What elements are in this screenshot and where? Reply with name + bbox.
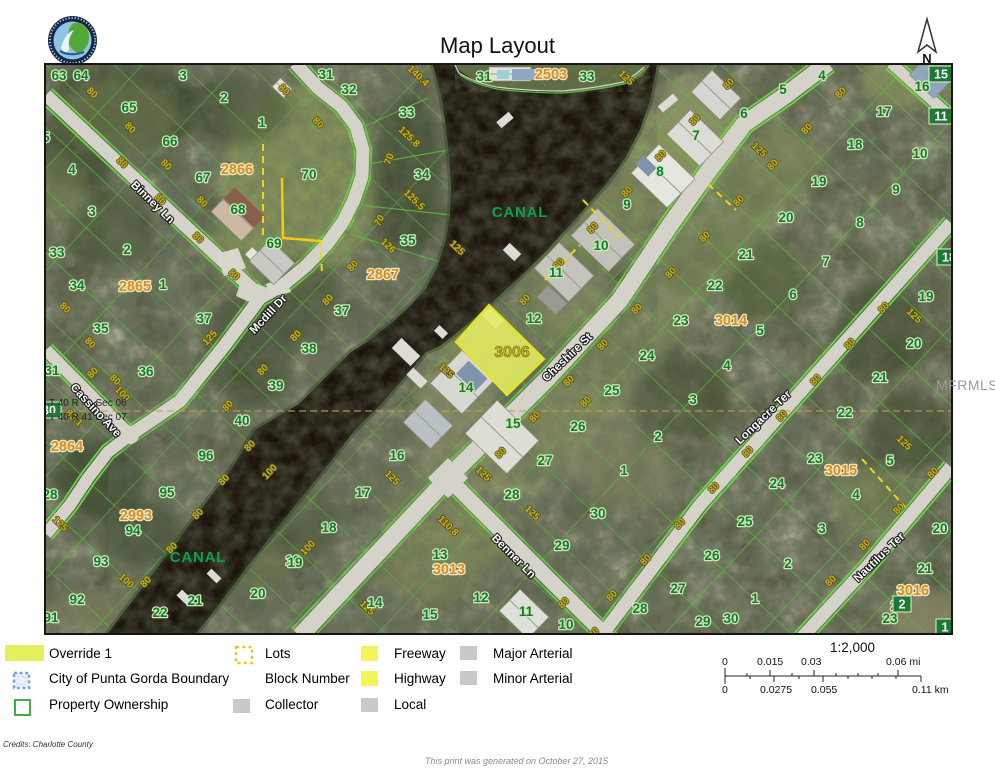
svg-text:10: 10 [558, 617, 573, 632]
svg-text:16: 16 [914, 79, 930, 94]
svg-text:21: 21 [738, 247, 754, 262]
svg-text:33: 33 [49, 245, 65, 260]
svg-text:2865: 2865 [119, 279, 151, 295]
svg-text:25: 25 [604, 383, 620, 398]
svg-text:2503: 2503 [535, 67, 567, 83]
svg-text:9: 9 [623, 197, 631, 212]
svg-text:6: 6 [740, 106, 748, 121]
svg-text:8: 8 [856, 215, 864, 230]
svg-text:2: 2 [220, 90, 228, 105]
svg-text:28: 28 [504, 487, 520, 502]
svg-text:2: 2 [123, 242, 131, 257]
svg-text:13: 13 [432, 547, 448, 562]
svg-text:2: 2 [784, 556, 792, 571]
svg-text:7: 7 [822, 254, 830, 269]
svg-text:37: 37 [196, 311, 211, 326]
svg-text:3: 3 [689, 392, 697, 407]
svg-text:26: 26 [570, 419, 586, 434]
svg-text:30: 30 [723, 611, 738, 626]
svg-text:15: 15 [505, 416, 521, 431]
svg-text:5: 5 [886, 453, 894, 468]
svg-text:21: 21 [872, 370, 888, 385]
svg-text:94: 94 [125, 523, 141, 538]
svg-text:29: 29 [695, 614, 710, 629]
svg-text:31: 31 [46, 363, 60, 378]
svg-text:1: 1 [258, 115, 266, 130]
svg-text:3: 3 [88, 204, 96, 219]
svg-text:20: 20 [250, 586, 265, 601]
svg-text:5: 5 [46, 130, 50, 145]
svg-text:67: 67 [195, 170, 210, 185]
svg-text:2: 2 [654, 429, 662, 444]
svg-text:15: 15 [422, 607, 438, 622]
svg-text:23: 23 [673, 313, 689, 328]
svg-text:0: 0 [722, 684, 728, 696]
svg-text:11: 11 [934, 110, 947, 124]
svg-text:26: 26 [704, 548, 720, 563]
svg-text:33: 33 [399, 105, 415, 120]
svg-text:37: 37 [334, 303, 349, 318]
svg-text:7: 7 [692, 128, 700, 143]
svg-text:14: 14 [458, 380, 474, 395]
svg-text:21: 21 [187, 593, 203, 608]
svg-text:1: 1 [159, 277, 167, 292]
svg-text:2864: 2864 [51, 439, 83, 455]
svg-text:17: 17 [355, 485, 370, 500]
svg-text:31: 31 [318, 67, 334, 82]
svg-text:3015: 3015 [825, 463, 857, 479]
svg-text:0.06 mi: 0.06 mi [886, 656, 920, 668]
svg-text:36: 36 [138, 364, 154, 379]
svg-text:69: 69 [266, 236, 281, 251]
svg-text:24: 24 [639, 348, 655, 363]
svg-text:91: 91 [46, 610, 59, 625]
svg-text:22: 22 [152, 605, 167, 620]
svg-text:96: 96 [198, 448, 214, 463]
svg-text:19: 19 [918, 289, 933, 304]
svg-text:35: 35 [400, 233, 416, 248]
svg-text:17: 17 [876, 104, 891, 119]
svg-text:18: 18 [321, 520, 337, 535]
svg-text:23: 23 [882, 611, 898, 626]
svg-text:3013: 3013 [433, 562, 465, 578]
svg-text:12: 12 [526, 311, 541, 326]
svg-text:5: 5 [756, 323, 764, 338]
svg-text:22: 22 [707, 278, 722, 293]
svg-text:6: 6 [789, 287, 797, 302]
svg-text:11: 11 [519, 604, 534, 619]
svg-text:19: 19 [811, 174, 826, 189]
svg-text:93: 93 [93, 554, 109, 569]
svg-text:4: 4 [852, 487, 860, 502]
svg-text:10: 10 [593, 238, 608, 253]
svg-text:2993: 2993 [120, 508, 152, 524]
svg-text:0: 0 [722, 656, 728, 668]
svg-text:20: 20 [906, 336, 921, 351]
svg-text:34: 34 [414, 167, 430, 182]
svg-text:27: 27 [670, 581, 685, 596]
svg-text:95: 95 [159, 485, 175, 500]
svg-text:31: 31 [476, 69, 492, 84]
svg-text:9: 9 [892, 182, 900, 197]
svg-text:2867: 2867 [367, 267, 399, 283]
svg-text:3006: 3006 [494, 344, 530, 361]
svg-text:10: 10 [912, 146, 927, 161]
svg-text:3014: 3014 [715, 313, 747, 329]
svg-text:0.11 km: 0.11 km [912, 684, 949, 696]
svg-text:19: 19 [287, 555, 302, 570]
svg-text:3: 3 [179, 68, 187, 83]
svg-text:23: 23 [807, 451, 823, 466]
svg-text:1: 1 [620, 463, 628, 478]
svg-text:33: 33 [579, 69, 595, 84]
svg-text:35: 35 [93, 321, 109, 336]
svg-text:21: 21 [917, 561, 933, 576]
svg-text:0.03: 0.03 [801, 656, 822, 668]
svg-text:38: 38 [301, 341, 317, 356]
svg-text:28: 28 [632, 601, 648, 616]
svg-text:0.0275: 0.0275 [760, 684, 792, 696]
svg-text:2866: 2866 [221, 162, 253, 178]
svg-text:5: 5 [779, 82, 787, 97]
svg-text:27: 27 [537, 453, 552, 468]
svg-text:68: 68 [230, 202, 246, 217]
svg-text:4: 4 [818, 68, 826, 83]
svg-text:14: 14 [367, 595, 383, 610]
svg-text:29: 29 [554, 538, 569, 553]
svg-text:11: 11 [549, 265, 564, 280]
svg-text:18: 18 [942, 251, 951, 265]
svg-text:16: 16 [389, 448, 405, 463]
svg-text:20: 20 [778, 210, 793, 225]
svg-text:24: 24 [769, 476, 785, 491]
svg-text:8: 8 [656, 164, 664, 179]
svg-text:T 40 R 41 Sec 07: T 40 R 41 Sec 07 [49, 412, 127, 423]
svg-text:4: 4 [723, 358, 731, 373]
svg-text:CANAL: CANAL [170, 549, 227, 566]
svg-text:32: 32 [341, 82, 356, 97]
svg-text:66: 66 [162, 134, 178, 149]
svg-text:20: 20 [932, 521, 947, 536]
svg-text:CANAL: CANAL [492, 204, 549, 221]
svg-text:63: 63 [51, 68, 67, 83]
svg-text:40: 40 [234, 413, 249, 428]
svg-text:1: 1 [751, 591, 759, 606]
svg-text:22: 22 [837, 405, 852, 420]
svg-text:18: 18 [847, 137, 863, 152]
svg-text:1: 1 [942, 621, 949, 634]
svg-text:92: 92 [69, 592, 84, 607]
svg-text:4: 4 [68, 162, 76, 177]
svg-text:0.015: 0.015 [757, 656, 783, 668]
svg-text:39: 39 [268, 378, 283, 393]
svg-text:12: 12 [473, 590, 488, 605]
svg-text:15: 15 [934, 68, 948, 82]
svg-text:0.055: 0.055 [811, 684, 837, 696]
svg-text:34: 34 [69, 278, 85, 293]
svg-text:65: 65 [121, 100, 137, 115]
svg-text:70: 70 [301, 167, 316, 182]
svg-text:2: 2 [899, 598, 906, 612]
svg-text:28: 28 [46, 487, 58, 502]
svg-text:64: 64 [73, 68, 89, 83]
svg-text:3: 3 [818, 521, 826, 536]
svg-text:1:2,000: 1:2,000 [830, 640, 875, 655]
svg-text:30: 30 [590, 506, 605, 521]
svg-text:25: 25 [737, 514, 753, 529]
